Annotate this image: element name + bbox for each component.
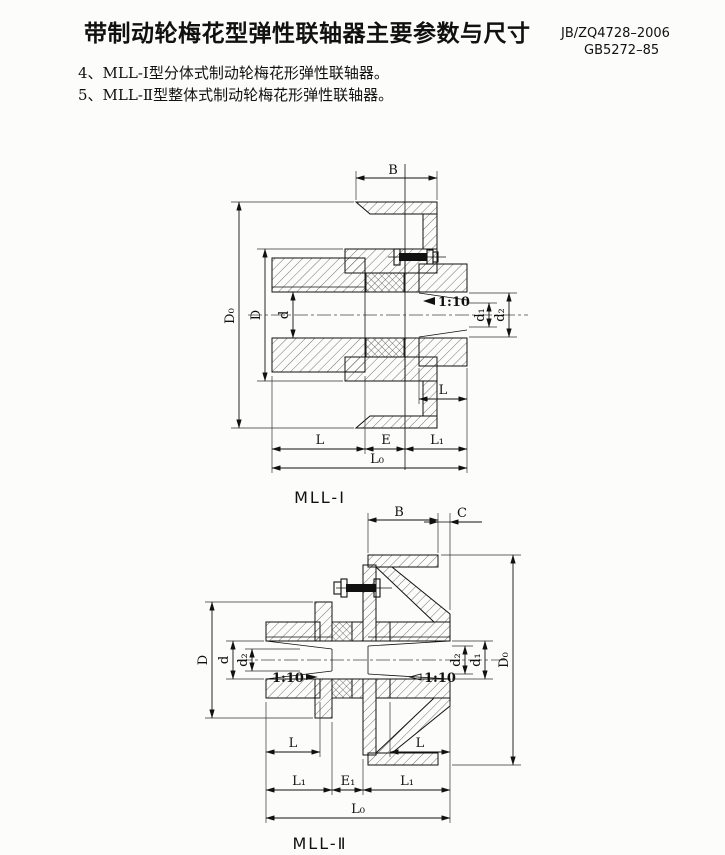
fig1-dim-label-D0: D₀ <box>223 308 238 324</box>
fig1-dim-label-D: D <box>249 310 264 320</box>
page: 带制动轮梅花型弹性联轴器主要参数与尺寸 JB/ZQ4728–2006 GB527… <box>0 0 725 855</box>
fig2-brake-rim-lower <box>368 753 438 765</box>
fig2-left-taper-top <box>266 641 332 649</box>
fig1-brake-rim-lower <box>356 416 437 428</box>
fig2-flange-plate-upper <box>363 565 376 641</box>
fig2-caption: MLL-Ⅱ <box>293 834 348 853</box>
fig2-collar-upper <box>352 622 363 641</box>
fig2-dim-label-L-left: L <box>289 736 298 751</box>
fig2-dim-label-L1-right: L₁ <box>400 774 414 789</box>
fig2-dim-label-C: C <box>457 506 467 521</box>
fig1-brake-rim-upper <box>356 202 437 214</box>
fig1-taper-label: 1:10 <box>438 295 470 310</box>
fig2-dim-label-L-right: L <box>416 736 425 751</box>
fig2-dim-label-E1: E₁ <box>341 774 356 789</box>
fig1-dim-label-B: B <box>388 163 398 178</box>
fig2-right-hub-upper <box>390 622 450 641</box>
fig2-dim-label-D0: D₀ <box>497 652 512 668</box>
fig1-left-hub-lower <box>272 338 365 372</box>
fig1-brake-web-lower <box>423 381 437 416</box>
fig2-collar-lower <box>352 679 363 698</box>
fig1-flange-hub-upper <box>405 273 419 292</box>
fig2-bolt-shank <box>346 584 376 592</box>
fig2-taper-label-left: 1:10 <box>272 671 304 686</box>
fig1-dim-label-L1: L₁ <box>430 433 444 448</box>
fig2-dim-label-D: D <box>196 655 211 665</box>
fig1-dim-label-d: d <box>277 311 292 319</box>
fig1-right-hub-lower <box>419 338 467 366</box>
fig1-dim-label-d2: d₂ <box>493 308 508 322</box>
fig2-dim-label-d: d <box>217 656 232 664</box>
fig1-brake-web-upper <box>423 214 437 249</box>
fig1-dim-label-d1: d₁ <box>473 308 488 322</box>
fig1-elastomer-spider-upper <box>366 273 404 292</box>
fig2-brake-rim-upper <box>368 555 438 567</box>
fig1-dim-label-L0: L₀ <box>370 452 384 467</box>
fig2-brake-web-upper <box>376 567 450 622</box>
fig2-elastomer-spider-lower <box>332 679 352 698</box>
fig1-dim-label-E: E <box>381 433 391 448</box>
figure-mll1-drawing: B D₀ D d d₁ d₂ 1:10 <box>223 163 528 507</box>
fig2-elastomer-spider-upper <box>332 622 352 641</box>
technical-drawings-canvas: B D₀ D d d₁ d₂ 1:10 <box>0 0 725 855</box>
fig2-dim-label-d2-right: d₂ <box>449 653 464 667</box>
fig2-taper-label-right: 1:10 <box>424 671 456 686</box>
fig2-left-flange-upper <box>315 602 332 641</box>
fig1-bolt-shank <box>399 253 427 261</box>
fig1-taper-bore-bottom <box>419 330 467 337</box>
fig1-flange-hub-lower <box>405 338 419 357</box>
fig1-taper-arrow-icon <box>423 297 435 305</box>
fig2-flange-plate-lower <box>363 679 376 755</box>
fig1-dim-label-L: L <box>316 433 325 448</box>
fig1-dim-label-L-right: L <box>439 383 448 398</box>
fig2-right-hub-neck-upper <box>376 622 390 641</box>
fig2-right-hub-neck-lower <box>376 679 390 698</box>
fig2-left-flange-lower <box>315 679 332 718</box>
fig2-dim-label-B: B <box>394 505 404 520</box>
fig2-right-taper-top <box>368 641 450 646</box>
fig2-dim-label-d1: d₁ <box>469 653 484 667</box>
fig2-brake-web-lower <box>376 698 450 753</box>
fig1-caption: MLL-Ⅰ <box>294 488 346 507</box>
fig2-dim-label-L0: L₀ <box>351 802 365 817</box>
fig2-left-hub-upper <box>266 622 320 641</box>
fig1-elastomer-spider-lower <box>366 338 404 357</box>
fig2-dim-label-L1-left: L₁ <box>292 774 306 789</box>
fig1-right-hub-upper <box>419 264 467 292</box>
fig2-dim-label-d2-left: d₂ <box>236 653 251 667</box>
figure-mll2-drawing: B C D₀ D d d₂ <box>196 505 521 853</box>
